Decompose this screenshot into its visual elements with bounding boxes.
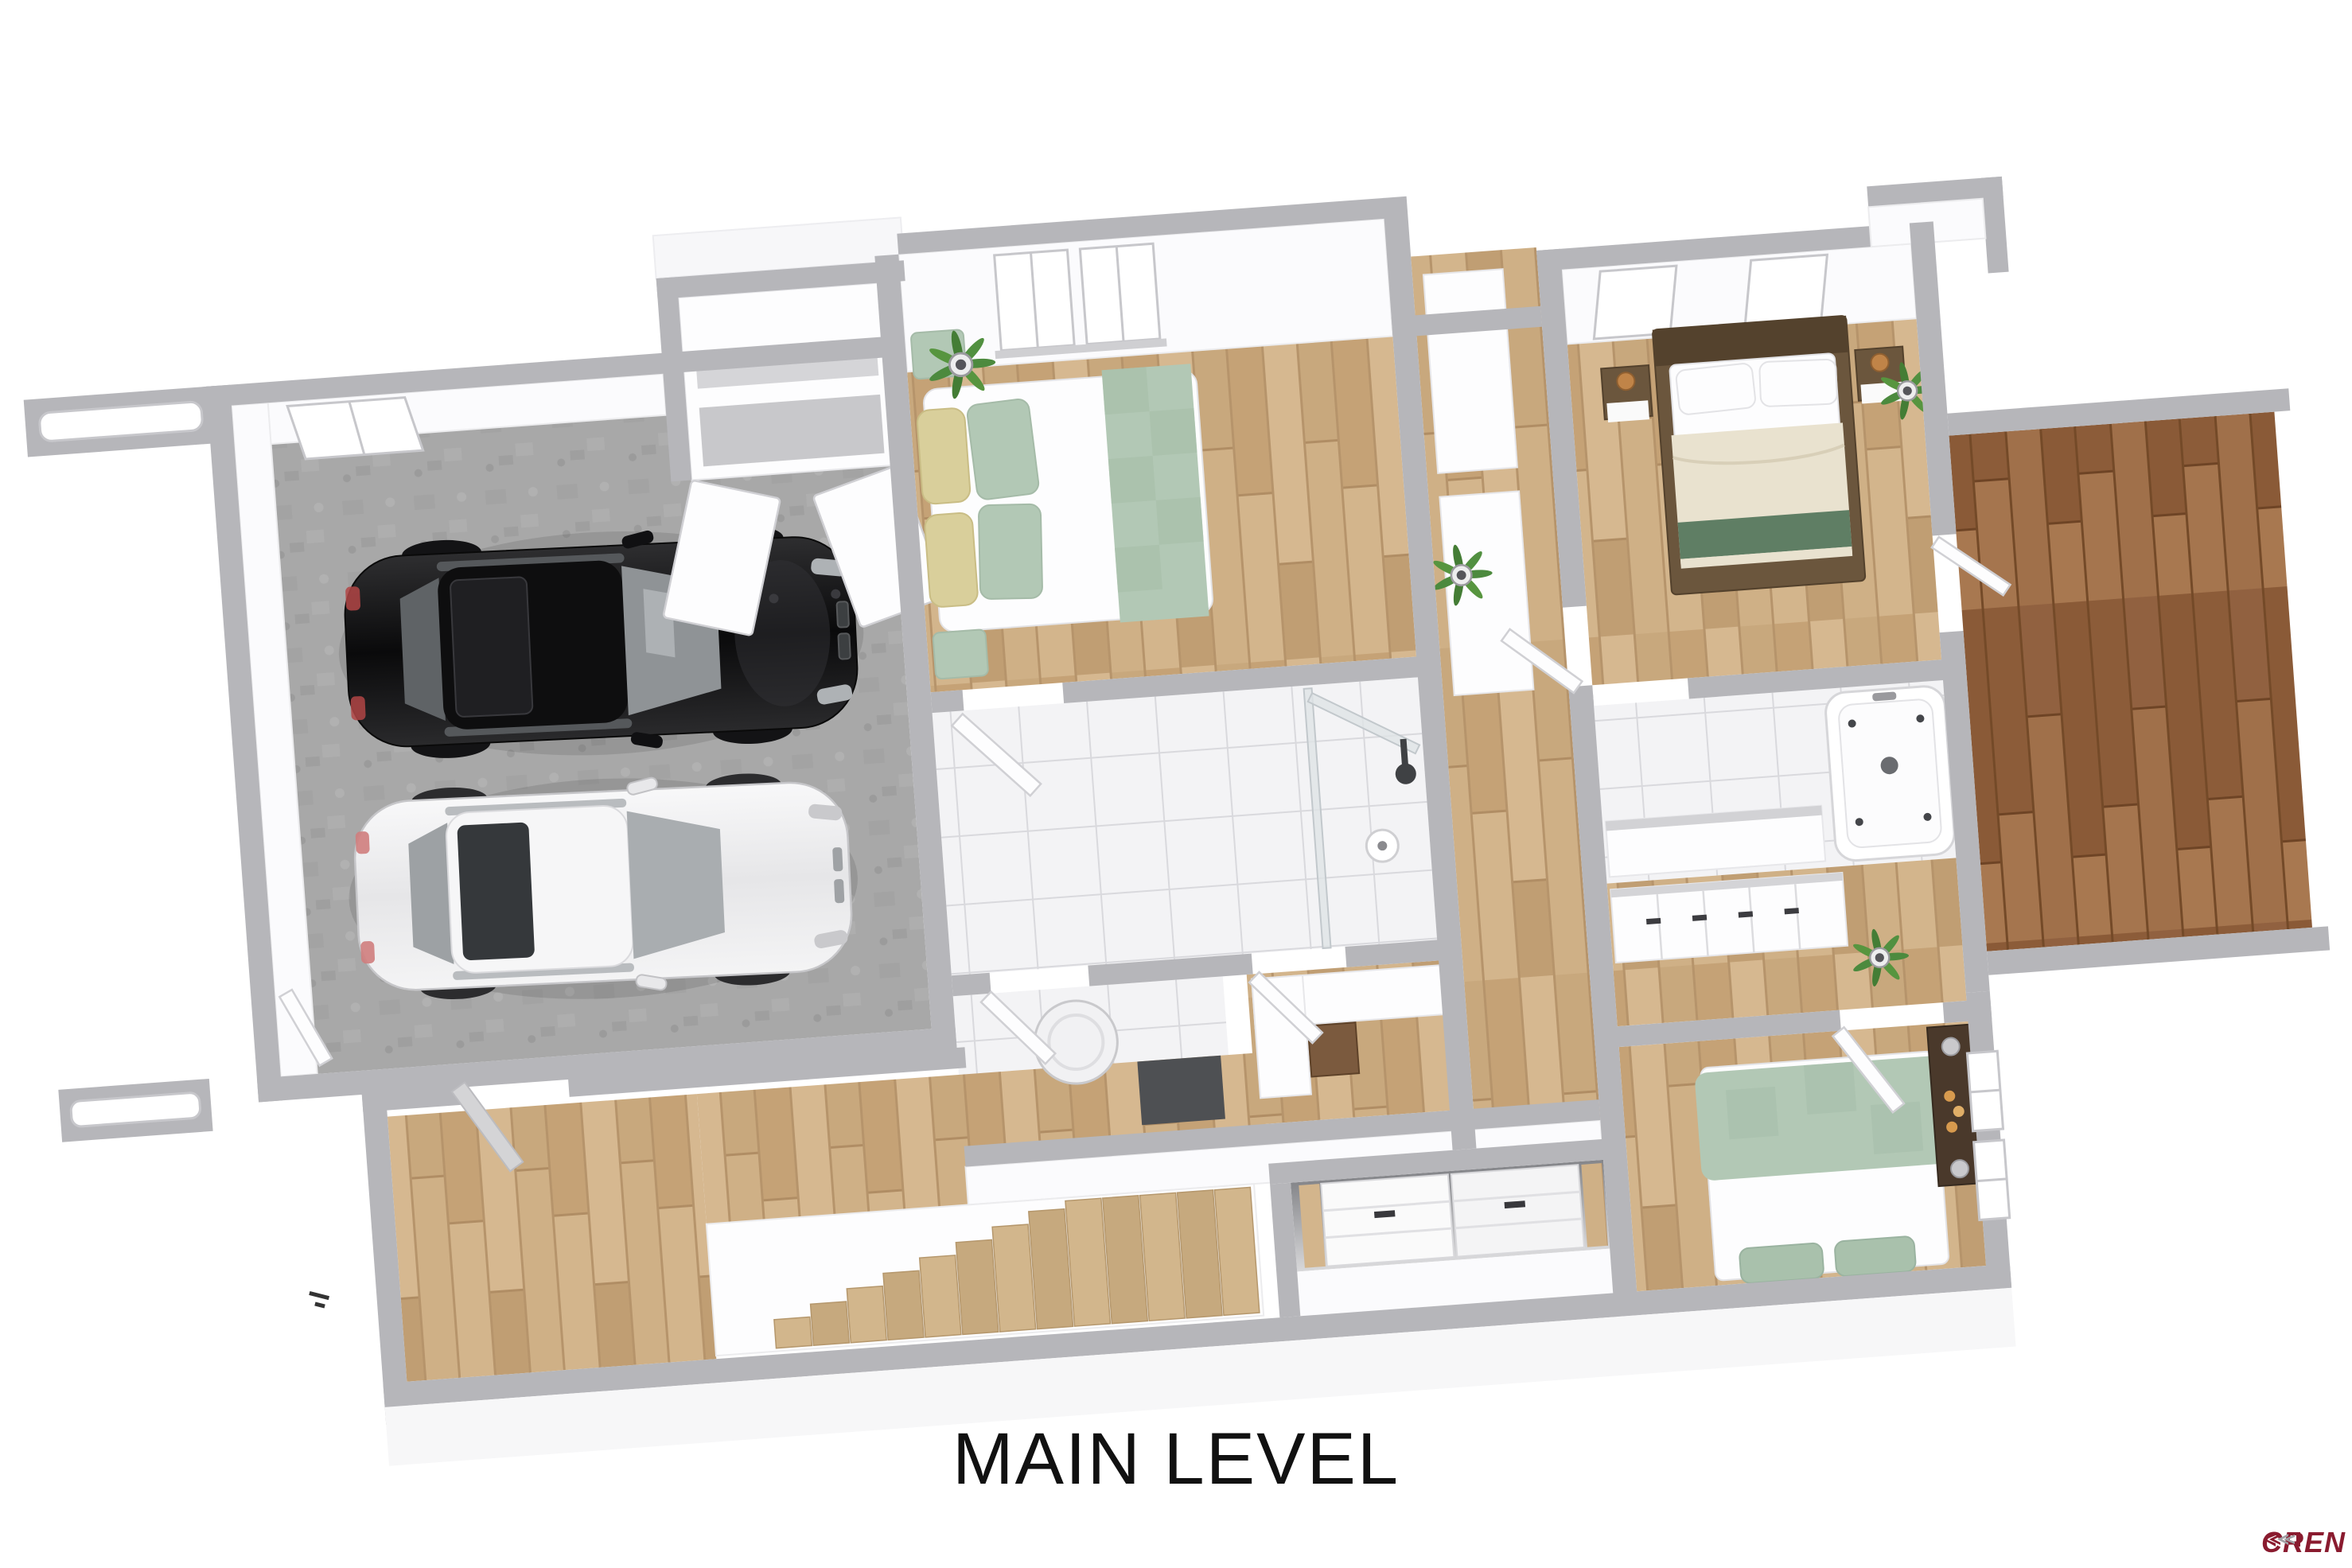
floor-plan — [0, 117, 2352, 1488]
closet-partition — [1423, 269, 1517, 473]
wall — [952, 973, 991, 996]
bed2-sage-pillow — [966, 398, 1039, 500]
bed2-sage-pillow — [979, 504, 1042, 600]
black-car-sunroof — [450, 577, 533, 717]
wardrobe-handle — [1784, 908, 1798, 914]
master-bed — [1653, 316, 1866, 595]
wall — [931, 690, 964, 713]
bed2-runner-check — [1156, 497, 1204, 545]
entry-hall-floor — [387, 1094, 716, 1382]
white-car — [344, 767, 863, 1010]
closet-partition — [1439, 491, 1533, 695]
nightstand-drawer — [1606, 400, 1649, 422]
floor-plan-rendering — [0, 0, 2352, 1568]
watermark-logo: CREN — [2261, 1526, 2346, 1559]
bedroom3-bed — [1694, 1051, 1956, 1286]
white-car-taillight — [356, 831, 370, 854]
bed3-pillow — [1834, 1236, 1916, 1277]
utility-appliance — [1137, 1056, 1225, 1125]
closet-door-panel — [1321, 1174, 1454, 1266]
black-car-grille — [838, 633, 850, 659]
vase-icon — [1950, 1159, 1969, 1178]
white-car-windshield — [627, 807, 726, 959]
deck-floor — [1949, 412, 2312, 951]
master-bed-pillow — [1759, 360, 1837, 407]
bed2-yellow-pillow — [924, 512, 978, 608]
white-car-sunroof — [457, 822, 535, 960]
garage-skylight-window — [287, 396, 423, 460]
bed2-yellow-pillow — [917, 407, 971, 504]
lamp-icon — [1617, 372, 1636, 391]
bed2-runner-check — [1115, 545, 1162, 593]
black-car-grille — [836, 601, 848, 628]
bed2-runner-check — [1108, 456, 1156, 504]
black-car-taillight — [350, 696, 365, 721]
bedroom2-bed — [914, 364, 1213, 636]
wardrobe-handle — [1646, 918, 1661, 924]
master-bed-pillow — [1676, 363, 1756, 415]
page-title: MAIN LEVEL — [0, 1418, 2352, 1501]
lamp-icon — [1871, 353, 1890, 372]
black-car-taillight — [345, 586, 360, 611]
wardrobe-handle — [1692, 915, 1707, 921]
wardrobe-handle — [1739, 911, 1753, 917]
shower-arm — [1404, 739, 1405, 766]
white-car-grille — [834, 879, 844, 904]
closet-door-panel — [1451, 1165, 1584, 1256]
white-car-taillight — [360, 941, 375, 964]
front-door-handle — [310, 1292, 329, 1308]
bed2-bench — [933, 629, 988, 679]
bed3-blanket-check — [1804, 1062, 1856, 1115]
bed3-blanket-check — [1726, 1087, 1778, 1139]
bed2-runner-check — [1102, 367, 1150, 414]
floor-plan-page: MAIN LEVEL CREN — [0, 0, 2352, 1568]
black-car — [333, 519, 868, 767]
wall — [1943, 999, 1992, 1023]
bed3-pillow — [1739, 1243, 1824, 1283]
white-car-grille — [832, 847, 843, 872]
vase-icon — [1941, 1037, 1961, 1056]
bed2-runner-check — [1150, 408, 1197, 456]
vestibule-closet — [1291, 1160, 1613, 1316]
bathtub — [1824, 685, 1956, 862]
cren-logo-icon — [2261, 1526, 2303, 1553]
